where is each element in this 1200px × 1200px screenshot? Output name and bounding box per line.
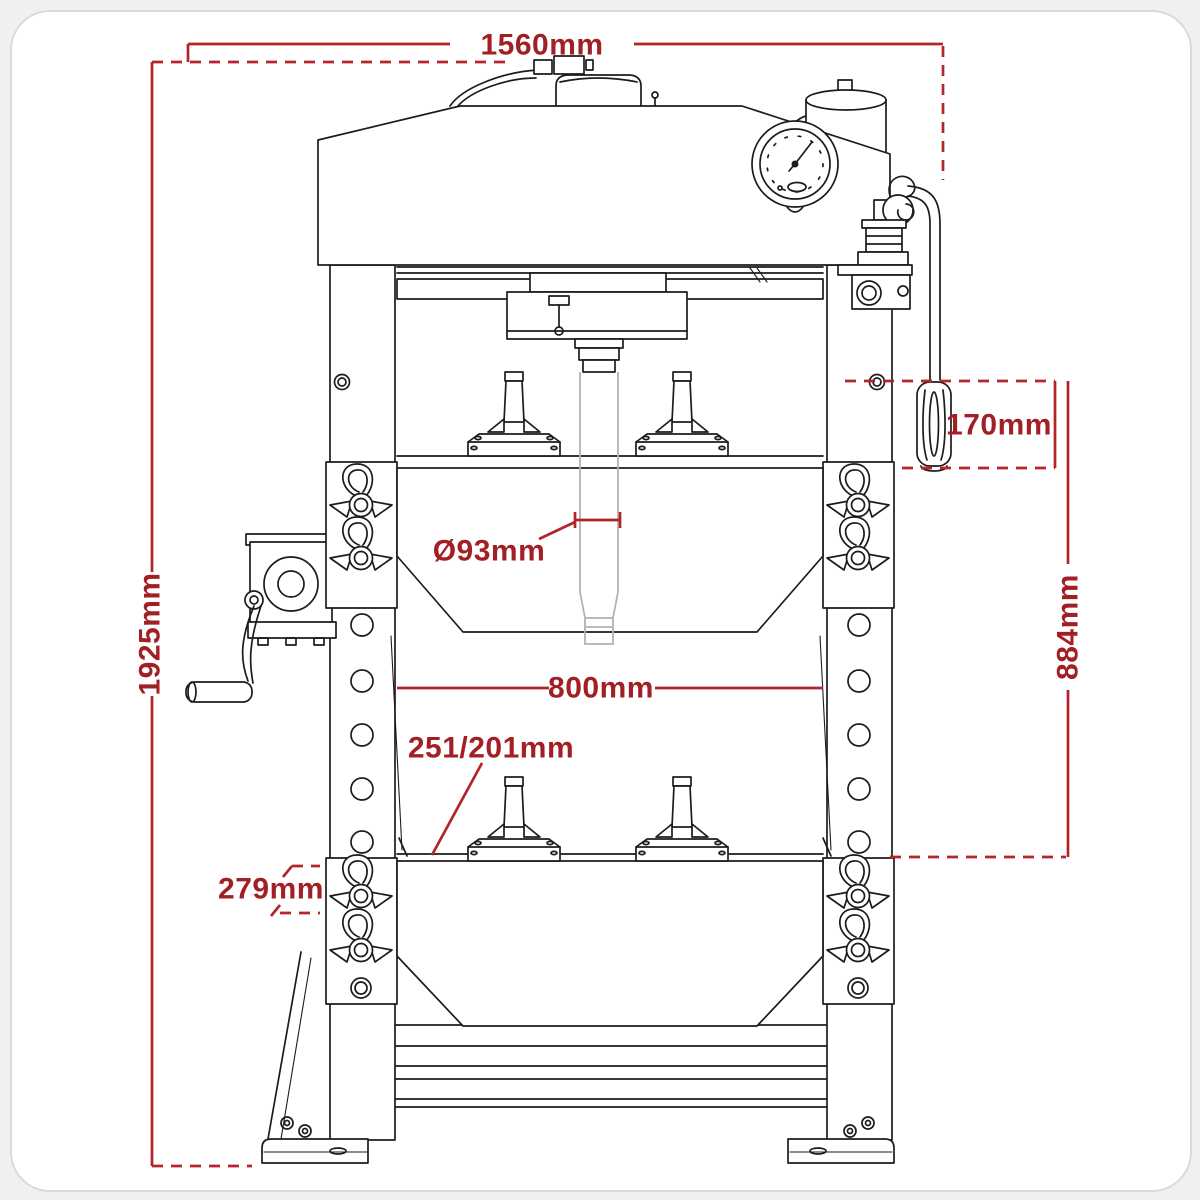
dimension-label-bed-depth: 279mm <box>218 873 324 906</box>
right-column <box>827 265 892 1140</box>
dimension-label-ram-diameter: Ø93mm <box>433 535 546 568</box>
base-cross-members <box>363 1025 852 1107</box>
dimension-label-handle-length: 170mm <box>946 409 1052 442</box>
dimension-label-working-height: 884mm <box>1052 574 1085 680</box>
dimension-label-overall-height: 1925mm <box>134 572 167 695</box>
press-diagram: 1560mm 1925mm 170mm 884mm Ø93mm <box>0 0 1200 1200</box>
work-table <box>326 456 894 632</box>
lower-bed <box>326 854 894 1026</box>
v-block <box>468 372 560 456</box>
dimension-label-stroke-range: 251/201mm <box>408 732 574 765</box>
v-block <box>636 777 728 861</box>
v-block <box>636 372 728 456</box>
hydraulic-cylinder <box>507 273 687 372</box>
page: 1560mm 1925mm 170mm 884mm Ø93mm <box>0 0 1200 1200</box>
table-winch <box>186 534 336 702</box>
dimension-label-inner-width: 800mm <box>548 672 654 705</box>
left-column <box>330 265 395 1140</box>
v-block <box>468 777 560 861</box>
press-line-art <box>186 56 951 1163</box>
dimension-label-overall-width: 1560mm <box>480 29 603 62</box>
